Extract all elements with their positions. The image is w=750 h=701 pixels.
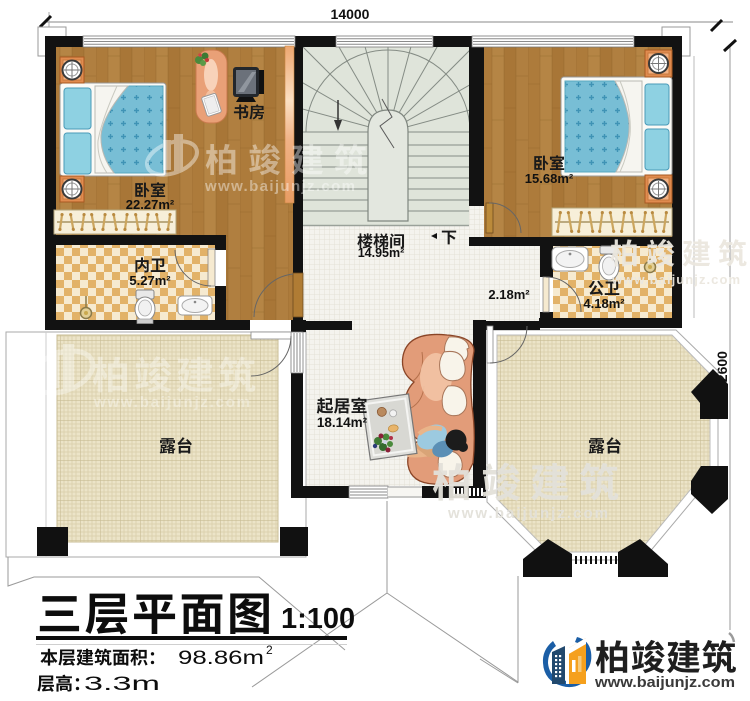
svg-text:22.27m²: 22.27m²: [126, 197, 175, 212]
svg-text:2.18m²: 2.18m²: [488, 287, 530, 302]
svg-text:5.27m²: 5.27m²: [129, 273, 171, 288]
svg-text:14000: 14000: [331, 6, 370, 22]
svg-text:14.95m²: 14.95m²: [358, 246, 405, 260]
svg-text:98.86m: 98.86m: [178, 648, 264, 669]
svg-text:1:100: 1:100: [281, 603, 355, 635]
svg-text:www.baijunjz.com: www.baijunjz.com: [611, 272, 740, 287]
svg-text:3.3m: 3.3m: [84, 674, 160, 695]
svg-text:15.68m²: 15.68m²: [525, 171, 574, 186]
svg-text:www.baijunjz.com: www.baijunjz.com: [204, 178, 355, 195]
svg-text:www.baijunjz.com: www.baijunjz.com: [594, 674, 735, 691]
svg-text:4.18m²: 4.18m²: [583, 296, 625, 311]
svg-text:18.14m²: 18.14m²: [317, 415, 368, 430]
svg-text:2: 2: [266, 643, 273, 657]
